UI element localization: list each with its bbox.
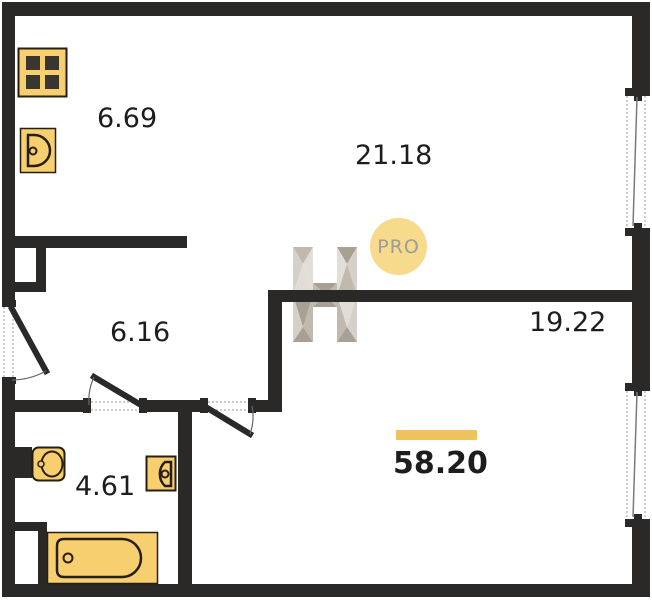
pro-badge: PRO	[370, 218, 427, 275]
wall-outer-top	[2, 2, 650, 16]
floorplan-drawing	[0, 0, 652, 600]
wall-hall-bath-middle	[141, 400, 203, 412]
stove-icon	[19, 49, 67, 97]
window2-nub-top	[634, 391, 642, 396]
door-swing-icon	[12, 371, 46, 380]
wall-kitchen-hall	[15, 236, 187, 248]
area-label-hallway: 6.16	[110, 317, 170, 348]
area-label-room: 19.22	[529, 307, 606, 338]
bathtub-icon	[48, 533, 158, 584]
total-area-label: 58.20	[393, 446, 488, 481]
wall-room-divider	[268, 290, 632, 302]
window1-cap-top	[625, 88, 650, 96]
window-glass-line	[633, 97, 637, 226]
wall-hall-bath-left	[15, 400, 86, 412]
entrance-door-leaf	[12, 309, 46, 371]
pro-badge-label: PRO	[377, 236, 420, 258]
shaft-wall-horizontal	[15, 282, 46, 292]
bathroom-door-leaf	[94, 377, 141, 405]
window2-nub-bottom	[634, 514, 642, 519]
entrance-jamb-top	[2, 300, 16, 307]
entrance-opening	[4, 307, 13, 377]
wall-outer-right-lower	[632, 519, 650, 597]
walls-group	[2, 2, 650, 597]
tub-nook-wall-vertical	[38, 522, 47, 584]
room-door-leaf	[204, 406, 250, 434]
window2-cap-top	[625, 383, 650, 391]
door1-jamb-left	[83, 398, 91, 413]
area-label-kitchen: 6.69	[97, 103, 157, 134]
wall-outer-right-middle	[632, 228, 650, 385]
wall-center-vertical	[268, 290, 282, 412]
total-area-underline	[396, 430, 477, 440]
area-label-living: 21.18	[355, 140, 432, 171]
washbasin-icon	[147, 457, 176, 491]
wall-outer-bottom	[2, 584, 650, 597]
wall-outer-left-upper	[2, 2, 15, 303]
wall-outer-left-lower	[2, 377, 15, 597]
window-glass-line	[633, 392, 637, 517]
window1-nub-bottom	[634, 223, 642, 228]
window1-nub-top	[634, 96, 642, 101]
area-label-bathroom: 4.61	[75, 471, 135, 502]
door1-opening	[91, 402, 139, 410]
kitchen-sink-icon	[21, 129, 56, 173]
floorplan: 6.69 21.18 6.16 19.22 4.61 58.20 PRO	[0, 0, 652, 600]
wall-bathroom-right	[178, 412, 192, 584]
toilet-icon	[15, 447, 65, 481]
wall-outer-right-upper	[632, 2, 650, 96]
wall-hall-bath-right	[252, 400, 282, 412]
